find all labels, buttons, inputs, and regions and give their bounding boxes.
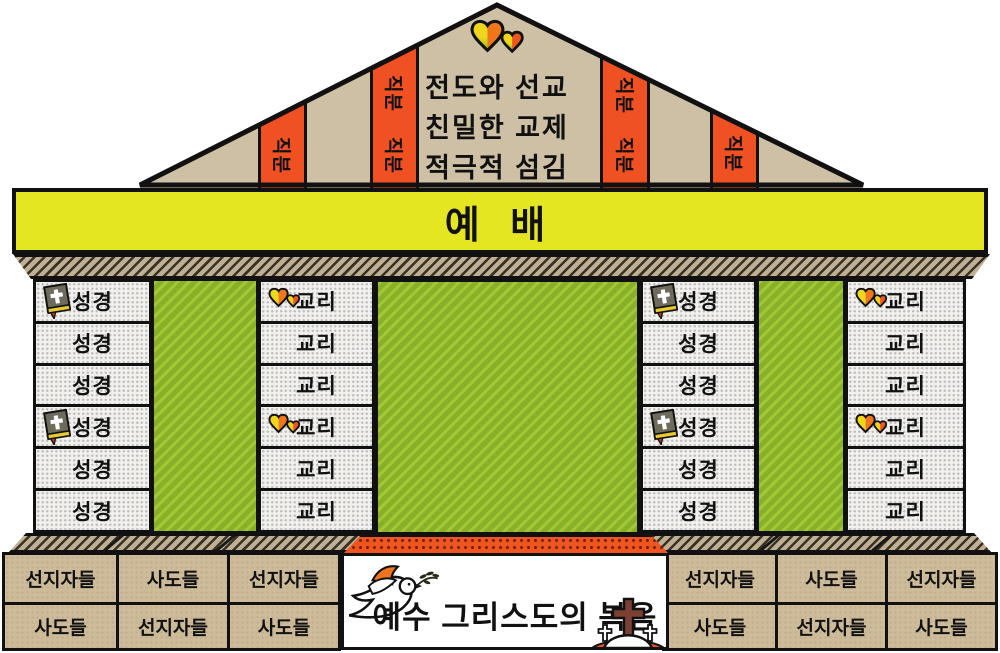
doctrine-block: 교리: [848, 407, 963, 449]
pediment-text: 전도와 선교 친밀한 교제 적극적 섬김: [317, 68, 677, 188]
foundation-right: 선지자들사도들선지자들사도들선지자들사도들: [662, 552, 998, 651]
bible-block: 성경: [36, 407, 149, 449]
bible-icon: [649, 409, 679, 445]
block-label: 교리: [296, 370, 337, 400]
double-hearts-icon: [468, 18, 532, 66]
doctrine-block: 교리: [261, 491, 372, 530]
block-label: 성경: [72, 496, 113, 526]
bible-block: 성경: [643, 407, 754, 449]
doctrine-block: 교리: [261, 366, 372, 408]
office-bar-label: 직분: [269, 137, 296, 174]
block-label: 성경: [678, 496, 719, 526]
block-label: 교리: [885, 328, 926, 358]
foundation-stone: 사도들: [227, 602, 338, 649]
doctrine-column-right: 교리교리교리교리교리교리: [845, 279, 966, 533]
foundation-stone: 사도들: [775, 555, 885, 602]
hearts-icon: [267, 287, 305, 315]
hearts-icon: [267, 413, 305, 441]
foundation-stone: 선지자들: [5, 555, 116, 602]
bible-block: 성경: [36, 366, 149, 408]
doctrine-block: 교리: [848, 282, 963, 324]
pediment-line-serving: 적극적 섬김: [317, 148, 677, 188]
bible-icon: [42, 409, 72, 445]
foundation-stone: 선지자들: [665, 555, 775, 602]
doctrine-block: 교리: [261, 324, 372, 366]
foundation-stone: 사도들: [5, 602, 116, 649]
block-label: 성경: [678, 370, 719, 400]
foundation-stone: 사도들: [885, 602, 995, 649]
doctrine-column-left: 교리교리교리교리교리교리: [258, 279, 375, 533]
green-column-left: [152, 279, 258, 533]
doctrine-block: 교리: [261, 407, 372, 449]
bible-block: 성경: [36, 449, 149, 491]
bible-block: 성경: [643, 282, 754, 324]
hearts-icon: [854, 287, 892, 315]
bible-column-right: 성경성경성경성경성경성경: [640, 279, 757, 533]
bible-block: 성경: [643, 366, 754, 408]
foundation-left: 선지자들사도들선지자들사도들선지자들사도들: [2, 552, 341, 651]
block-label: 성경: [72, 286, 113, 316]
office-bar: 직분: [258, 2, 307, 188]
block-label: 성경: [72, 412, 113, 442]
stage-platform: [343, 533, 669, 554]
bible-column-left: 성경성경성경성경성경성경: [33, 279, 152, 533]
office-bar: 직분: [710, 2, 759, 188]
doctrine-block: 교리: [848, 491, 963, 530]
pediment-line-evangelism: 전도와 선교: [317, 68, 677, 108]
bible-icon: [42, 283, 72, 319]
block-label: 성경: [72, 454, 113, 484]
bible-block: 성경: [643, 324, 754, 366]
worship-label: 예 배: [445, 194, 555, 249]
doctrine-block: 교리: [848, 449, 963, 491]
block-label: 성경: [678, 412, 719, 442]
worship-beam: 예 배: [12, 188, 988, 254]
block-label: 교리: [296, 496, 337, 526]
hearts-icon: [854, 413, 892, 441]
bible-block: 성경: [36, 282, 149, 324]
three-crosses-icon: [591, 597, 665, 649]
block-label: 교리: [885, 496, 926, 526]
doctrine-block: 교리: [848, 366, 963, 408]
foundation-stone: 선지자들: [116, 602, 227, 649]
green-center-panel: [375, 279, 640, 535]
pediment: 직분직분직분직분직분직분: [132, 2, 868, 188]
bible-icon: [649, 283, 679, 319]
office-bar-label: 직분: [721, 135, 748, 172]
bible-block: 성경: [643, 491, 754, 530]
block-label: 성경: [678, 286, 719, 316]
green-column-right: [757, 279, 845, 533]
foundation-stone: 사도들: [665, 602, 775, 649]
foundation-stone: 선지자들: [227, 555, 338, 602]
block-label: 교리: [296, 328, 337, 358]
block-label: 교리: [885, 454, 926, 484]
bible-block: 성경: [36, 491, 149, 530]
entablature-band: [13, 254, 990, 279]
block-label: 교리: [885, 370, 926, 400]
foundation-stone: 선지자들: [885, 555, 995, 602]
church-structure-diagram: 직분직분직분직분직분직분: [0, 0, 1000, 653]
block-label: 성경: [678, 454, 719, 484]
block-label: 성경: [678, 328, 719, 358]
gospel-banner: 예수 그리스도의 복음: [341, 553, 669, 650]
doctrine-block: 교리: [261, 282, 372, 324]
block-label: 성경: [72, 328, 113, 358]
pediment-line-fellowship: 친밀한 교제: [317, 108, 677, 148]
foundation-stone: 사도들: [116, 555, 227, 602]
foundation-stone: 선지자들: [775, 602, 885, 649]
doctrine-block: 교리: [261, 449, 372, 491]
bible-block: 성경: [643, 449, 754, 491]
block-label: 성경: [72, 370, 113, 400]
bible-block: 성경: [36, 324, 149, 366]
block-label: 교리: [296, 454, 337, 484]
doctrine-block: 교리: [848, 324, 963, 366]
